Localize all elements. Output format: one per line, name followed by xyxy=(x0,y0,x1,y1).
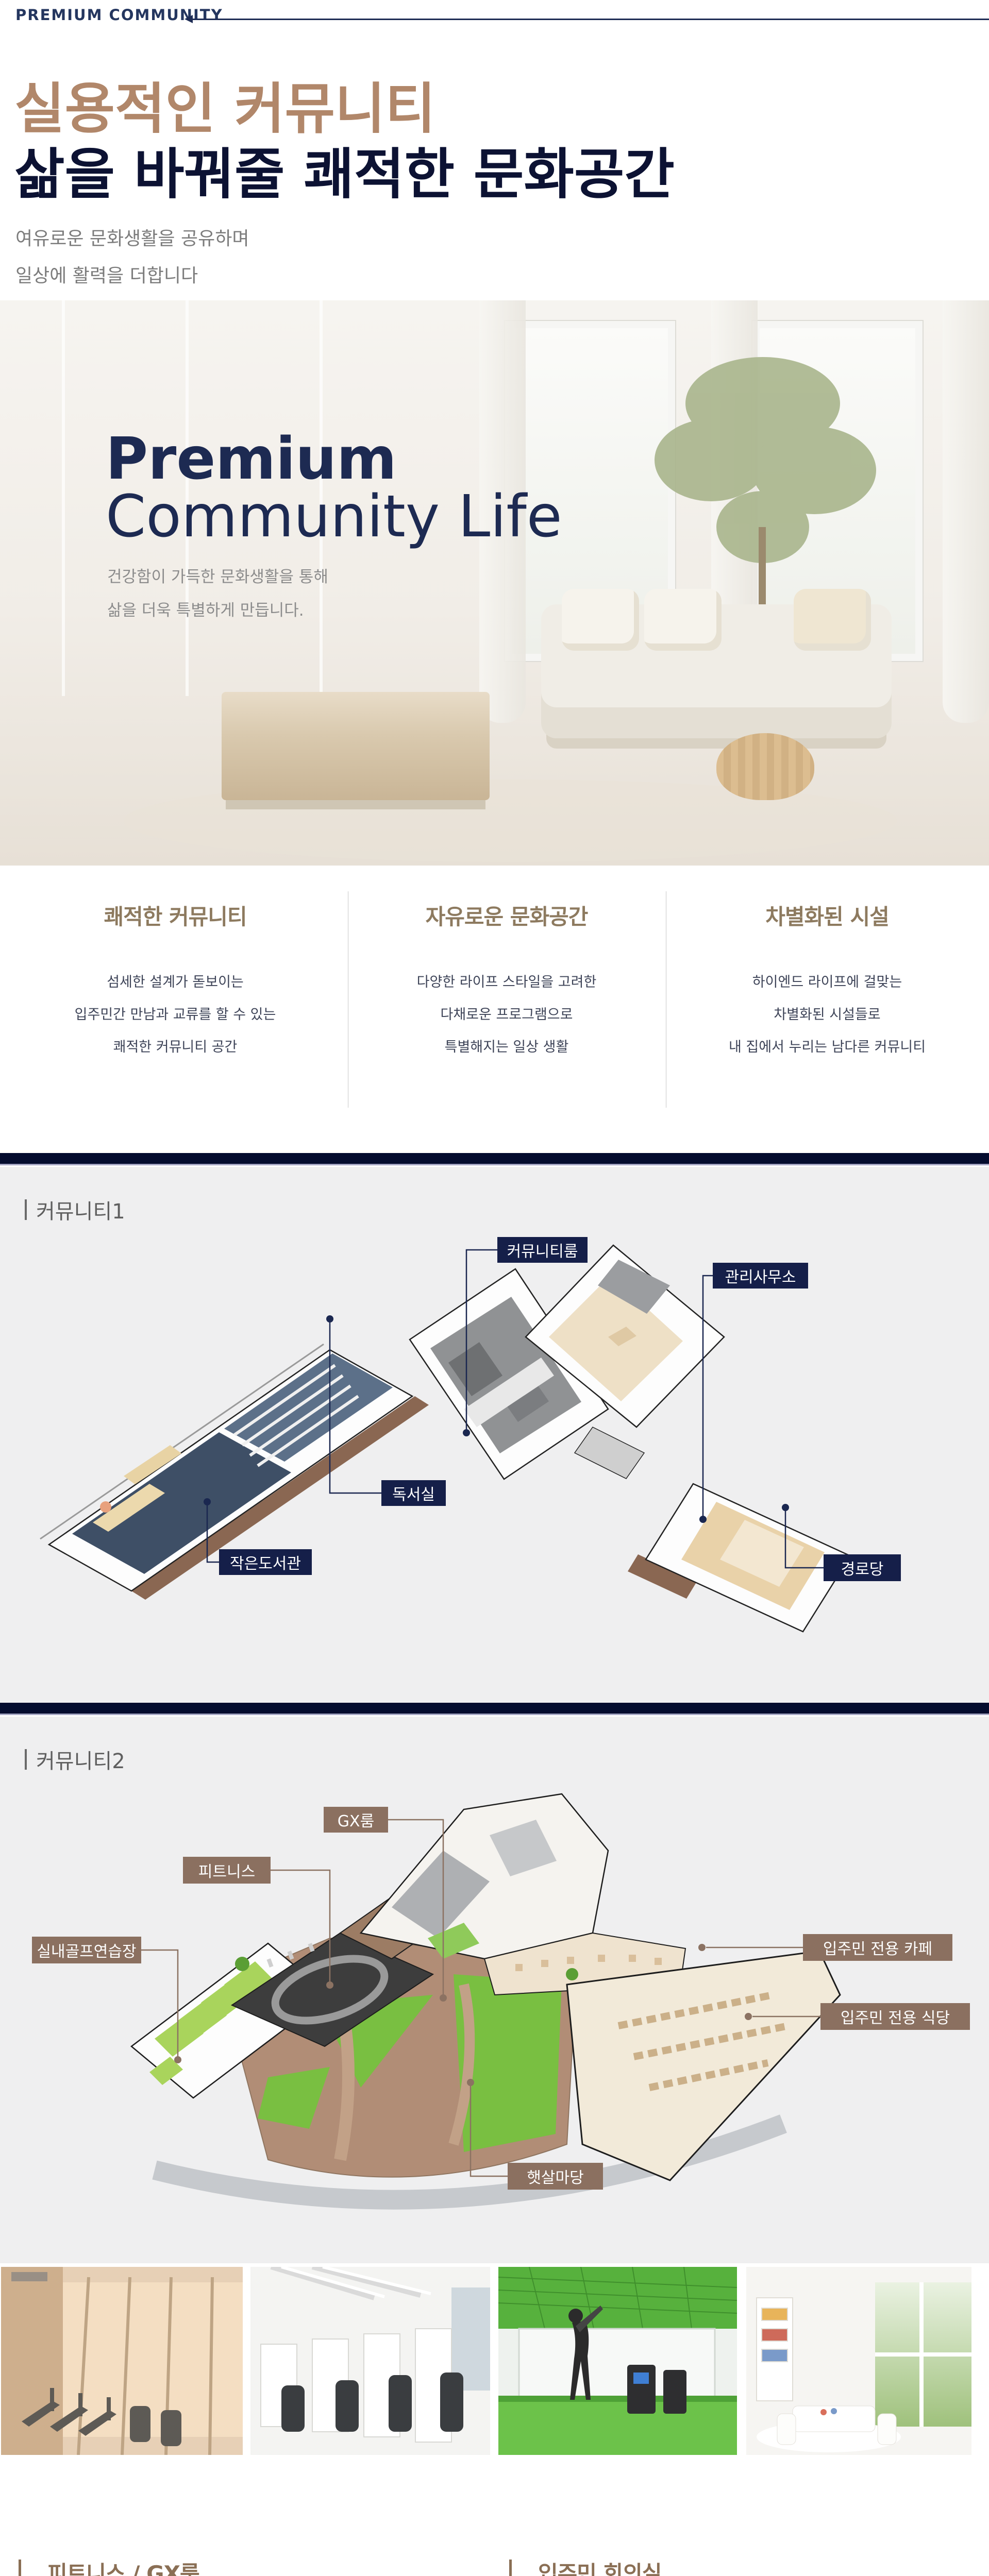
amenity-meeting-room: 입주민 회의실 입주민회의 및 소규모 모임등 다양한 용도로 활용가능한 공간 xyxy=(509,2556,973,2576)
column-divider xyxy=(348,891,348,1108)
pouf xyxy=(716,733,814,800)
page-title-accent: 실용적인 xyxy=(14,77,234,141)
feature-column-1-title: 쾌적한 커뮤니티 xyxy=(31,900,320,931)
plan1-label-small-library: 작은도서관 xyxy=(219,1549,312,1575)
hero-living-room-photo: Premium Community Life 건강함이 가득한 문화생활을 통해… xyxy=(0,300,989,866)
feature-column-3-title: 차별화된 시설 xyxy=(683,900,971,931)
left-arrow-icon xyxy=(185,15,193,23)
page-title-accent-bold: 커뮤니티 xyxy=(234,77,435,141)
header-arrow-line xyxy=(192,19,989,20)
study-room-photo xyxy=(250,2267,490,2455)
curtain xyxy=(943,300,989,723)
community2-section: 커뮤니티2 xyxy=(0,1717,989,2263)
plan1-label-senior-center: 경로당 xyxy=(824,1554,901,1581)
section-divider-band xyxy=(0,1703,989,1715)
plan2-label-resident-cafe: 입주민 전용 카페 xyxy=(803,1934,952,1961)
feature-column-2-body: 다양한 라이프 스타일을 고려한 다채로운 프로그램으로 특별해지는 일상 생활 xyxy=(362,966,651,1063)
hero-body-text: 건강함이 가득한 문화생활을 통해 삶을 더욱 특별하게 만듭니다. xyxy=(107,561,328,628)
page-subtitle: 여유로운 문화생활을 공유하며 일상에 활력을 더합니다 xyxy=(15,221,249,295)
community2-floorplan-illustration xyxy=(0,1717,989,2263)
amenity-accent-bar xyxy=(509,2560,512,2576)
plan1-label-reading-room: 독서실 xyxy=(381,1480,446,1506)
plan2-label-indoor-golf: 실내골프연습장 xyxy=(32,1937,141,1963)
plan2-label-resident-dining: 입주민 전용 식당 xyxy=(820,2003,970,2030)
feature-column-2-title: 자유로운 문화공간 xyxy=(362,900,651,931)
hero-body-line2: 삶을 더욱 특별하게 만듭니다. xyxy=(107,594,328,628)
hero-heading: Premium Community Life xyxy=(106,430,562,546)
plan1-label-management-office: 관리사무소 xyxy=(713,1263,808,1289)
hero-heading-line2: Community Life xyxy=(106,488,562,546)
hero-body-line1: 건강함이 가득한 문화생활을 통해 xyxy=(107,561,328,594)
community1-floorplan-illustration xyxy=(0,1167,989,1703)
page-subtitle-line1: 여유로운 문화생활을 공유하며 xyxy=(15,221,249,258)
golf-simulator-photo xyxy=(498,2267,737,2455)
feature-column-1-body: 섬세한 설계가 돋보이는 입주민간 만남과 교류를 할 수 있는 쾌적한 커뮤니… xyxy=(31,966,320,1063)
section-divider-band xyxy=(0,1153,989,1165)
feature-columns-section: 쾌적한 커뮤니티 섬세한 설계가 돋보이는 입주민간 만남과 교류를 할 수 있… xyxy=(0,866,989,1153)
plan2-label-sunny-yard: 햇살마당 xyxy=(508,2163,603,2190)
plan1-label-community-room: 커뮤니티룸 xyxy=(497,1237,588,1263)
hero-heading-line1: Premium xyxy=(106,426,397,493)
page-title: 실용적인 커뮤니티 삶을 바꿔줄 쾌적한 문화공간 xyxy=(14,76,675,207)
page-title-line2: 삶을 바꿔줄 쾌적한 문화공간 xyxy=(14,142,675,207)
column-divider xyxy=(666,891,666,1108)
plan2-label-gx-room: GX룸 xyxy=(324,1807,388,1833)
wall-panel-line xyxy=(62,300,65,696)
sofa-cushion xyxy=(562,589,639,651)
plan2-label-fitness: 피트니스 xyxy=(183,1857,271,1884)
amenity-fitness-gx: 피트니스 / GX룸 건강한 생활을 위해 마련된 특별한 공간 xyxy=(19,2556,482,2576)
amenity-accent-bar xyxy=(19,2560,21,2576)
sofa-cushion xyxy=(794,589,871,651)
feature-column-3-body: 하이엔드 라이프에 걸맞는 차별화된 시설들로 내 집에서 누리는 남다른 커뮤… xyxy=(683,966,971,1063)
feature-column-3: 차별화된 시설 하이엔드 라이프에 걸맞는 차별화된 시설들로 내 집에서 누리… xyxy=(683,900,971,1063)
community1-section: 커뮤니티1 xyxy=(0,1167,989,1703)
page-subtitle-line2: 일상에 활력을 더합니다 xyxy=(15,258,249,295)
feature-column-2: 자유로운 문화공간 다양한 라이프 스타일을 고려한 다채로운 프로그램으로 특… xyxy=(362,900,651,1063)
feature-column-1: 쾌적한 커뮤니티 섬세한 설계가 돋보이는 입주민간 만남과 교류를 할 수 있… xyxy=(31,900,320,1063)
coffee-table xyxy=(222,692,490,800)
fitness-room-photo xyxy=(1,2267,243,2455)
kids-room-photo xyxy=(746,2267,971,2455)
sofa-cushion xyxy=(644,589,722,651)
